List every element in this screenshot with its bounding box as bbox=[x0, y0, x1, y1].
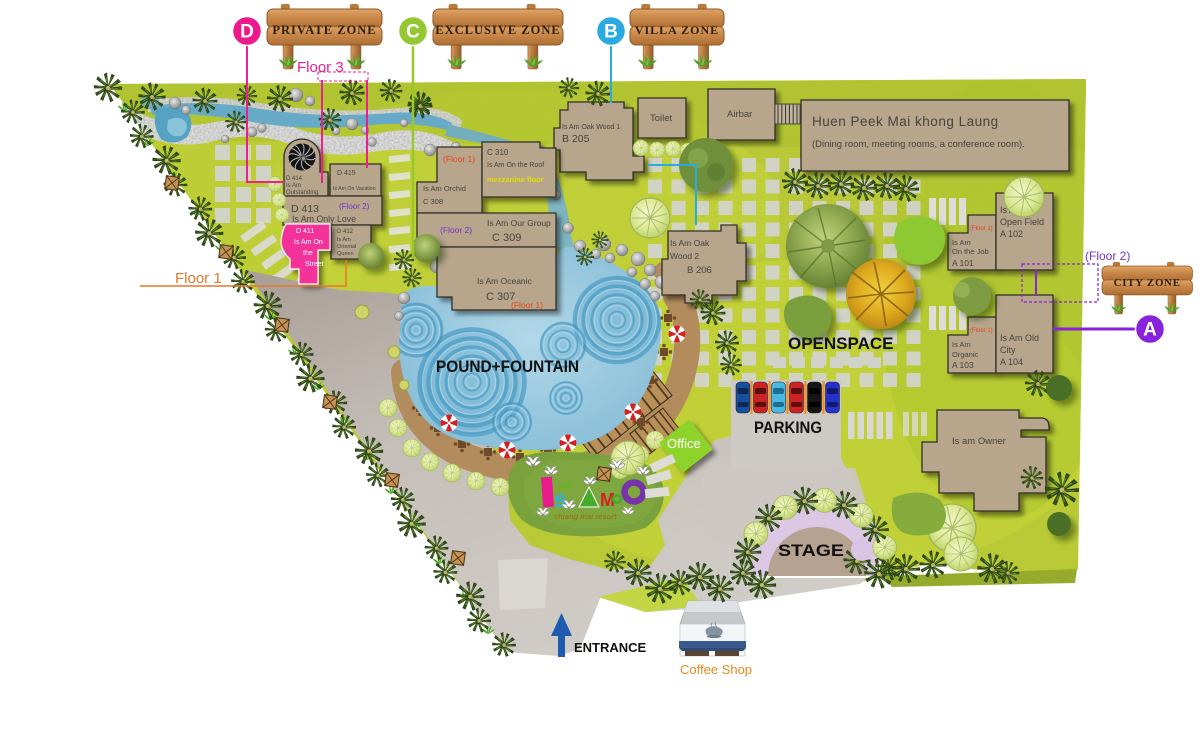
svg-text:Huen Peek Mai khong Laung: Huen Peek Mai khong Laung bbox=[812, 114, 999, 129]
svg-text:Is Am Only Love: Is Am Only Love bbox=[292, 214, 356, 224]
svg-text:Wood 2: Wood 2 bbox=[670, 251, 699, 261]
svg-text:Is Am: Is Am bbox=[286, 183, 301, 189]
svg-text:PARKING: PARKING bbox=[754, 418, 822, 437]
svg-text:(Floor 1): (Floor 1) bbox=[511, 300, 543, 310]
svg-text:Outstanding: Outstanding bbox=[286, 190, 318, 196]
svg-text:Is Am: Is Am bbox=[952, 340, 971, 349]
svg-text:Open Field: Open Field bbox=[1000, 217, 1044, 227]
svg-text:Is Am On the Roof: Is Am On the Roof bbox=[487, 162, 544, 169]
svg-text:Oriental: Oriental bbox=[337, 244, 356, 250]
svg-text:(Floor 1): (Floor 1) bbox=[970, 226, 993, 232]
svg-text:Street: Street bbox=[305, 261, 324, 268]
svg-text:A 102: A 102 bbox=[1000, 229, 1023, 239]
svg-text:(Floor 2): (Floor 2) bbox=[339, 202, 370, 211]
svg-text:A: A bbox=[1143, 320, 1157, 341]
svg-text:B 206: B 206 bbox=[687, 265, 712, 276]
svg-text:ENTRANCE: ENTRANCE bbox=[574, 640, 647, 655]
svg-text:Floor 1: Floor 1 bbox=[175, 270, 222, 287]
svg-text:EXCLUSIVE ZONE: EXCLUSIVE ZONE bbox=[435, 23, 561, 37]
svg-text:(Floor 2): (Floor 2) bbox=[440, 225, 472, 235]
svg-text:Coffee Shop: Coffee Shop bbox=[680, 662, 752, 677]
svg-text:Is am Owner: Is am Owner bbox=[952, 436, 1006, 447]
svg-text:Is Am Orchid: Is Am Orchid bbox=[423, 184, 466, 193]
svg-text:Toilet: Toilet bbox=[650, 113, 673, 124]
svg-text:B 205: B 205 bbox=[562, 133, 590, 145]
svg-text:City: City bbox=[1000, 345, 1016, 355]
svg-text:s: s bbox=[554, 486, 567, 512]
svg-text:D 412: D 412 bbox=[337, 229, 354, 235]
svg-text:B: B bbox=[604, 22, 618, 43]
svg-text:A 104: A 104 bbox=[1000, 357, 1023, 367]
svg-text:Office: Office bbox=[667, 436, 701, 451]
svg-text:C 308: C 308 bbox=[423, 197, 443, 206]
svg-text:Is Am Old: Is Am Old bbox=[1000, 333, 1039, 343]
svg-text:A 103: A 103 bbox=[952, 360, 974, 370]
svg-text:the: the bbox=[303, 250, 313, 257]
svg-text:chiang mai resort: chiang mai resort bbox=[554, 512, 617, 521]
svg-text:Is Am Oak: Is Am Oak bbox=[670, 238, 710, 248]
svg-text:PRIVATE ZONE: PRIVATE ZONE bbox=[272, 23, 376, 37]
svg-text:VILLA ZONE: VILLA ZONE bbox=[635, 23, 719, 37]
svg-text:C 310: C 310 bbox=[487, 148, 509, 157]
svg-text:D 415: D 415 bbox=[337, 170, 356, 177]
svg-text:STAGE: STAGE bbox=[778, 542, 844, 560]
svg-text:Is Am Oak Wood 1: Is Am Oak Wood 1 bbox=[562, 124, 620, 131]
svg-text:D: D bbox=[240, 22, 254, 43]
svg-text:Is Am: Is Am bbox=[952, 238, 971, 247]
svg-text:C: C bbox=[406, 22, 420, 43]
svg-text:Is Am Our Group: Is Am Our Group bbox=[487, 218, 551, 228]
svg-text:Is Am: Is Am bbox=[337, 237, 351, 243]
svg-text:CITY ZONE: CITY ZONE bbox=[1114, 277, 1181, 289]
svg-text:Is Am On: Is Am On bbox=[294, 239, 323, 246]
svg-text:Airbar: Airbar bbox=[727, 109, 752, 120]
svg-text:POUND+FOUNTAIN: POUND+FOUNTAIN bbox=[436, 358, 579, 376]
svg-text:(Floor 1): (Floor 1) bbox=[970, 328, 993, 334]
svg-text:(Dining room, meeting rooms, a: (Dining room, meeting rooms, a conferenc… bbox=[812, 139, 1025, 150]
svg-text:Floor 3: Floor 3 bbox=[297, 59, 344, 76]
svg-text:D 414: D 414 bbox=[286, 176, 303, 182]
svg-text:On the Job: On the Job bbox=[952, 247, 989, 256]
svg-text:(Floor 1): (Floor 1) bbox=[443, 154, 475, 164]
svg-text:Queen: Queen bbox=[337, 251, 354, 257]
svg-text:A 101: A 101 bbox=[952, 258, 974, 268]
svg-text:D 411: D 411 bbox=[296, 228, 314, 235]
svg-text:mezzanine floor: mezzanine floor bbox=[487, 175, 544, 184]
svg-text:Organic: Organic bbox=[952, 350, 979, 359]
svg-text:Is Am Oceanic: Is Am Oceanic bbox=[477, 276, 533, 286]
svg-text:C 309: C 309 bbox=[492, 232, 521, 244]
svg-text:Is Am On Vacation: Is Am On Vacation bbox=[333, 186, 376, 192]
svg-text:(Floor 2): (Floor 2) bbox=[1085, 249, 1130, 263]
